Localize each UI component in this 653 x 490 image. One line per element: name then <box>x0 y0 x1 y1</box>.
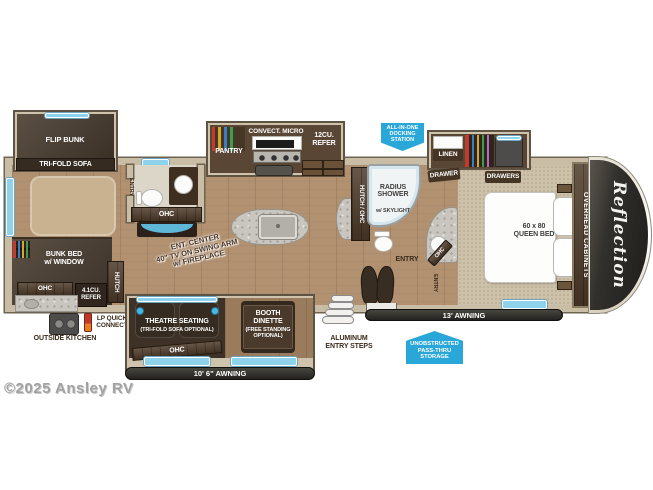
drawers-band: DRAWERS <box>485 171 521 183</box>
docking-station-badge: ALL-IN-ONE DOCKING STATION <box>381 123 424 151</box>
nightstand-top <box>557 184 572 193</box>
tri-fold-sofa: TRI-FOLD SOFA <box>16 158 115 171</box>
bunk-hutch: HUTCH <box>107 261 124 303</box>
bedroom-slide-skylight <box>497 136 521 140</box>
rear-toilet <box>141 189 163 207</box>
rv-floorplan: FLIP BUNK TRI-FOLD SOFA ENTRY OHC ENT. C… <box>0 0 653 490</box>
linen-label-band: LINEN <box>433 149 463 161</box>
pantry-label: PANTRY <box>210 148 248 156</box>
entry-steps-step2 <box>328 302 354 309</box>
rear-bath-ohc-label: OHC <box>159 211 174 219</box>
theatre-ohc-label: OHC <box>169 346 185 355</box>
rear-bath-ohc: OHC <box>131 207 202 222</box>
entry-steps-step1 <box>331 295 354 302</box>
outside-kitchen-sink <box>24 299 39 309</box>
outside-kitchen-label: OUTSIDE KITCHEN <box>28 335 102 343</box>
watermark: ©2025 Ansley RV <box>4 380 184 397</box>
bunk-bed-label: BUNK BED w/ WINDOW <box>26 251 102 266</box>
bedroom-slideout: LINEN <box>427 130 531 170</box>
lp-quick-connect-icon <box>84 313 92 332</box>
bedroom-entry-label: ENTRY <box>429 269 438 297</box>
radius-shower-title: RADIUS SHOWER <box>378 184 409 199</box>
theatre-skylight <box>137 297 217 302</box>
queen-bed-label: 60 x 80 QUEEN BED <box>482 223 586 238</box>
refrigerator-label: 12CU. REFER <box>304 132 344 147</box>
oven <box>255 165 293 176</box>
booth-label: BOOTH DINETTE <box>244 310 292 325</box>
front-awning-bar: 13' AWNING <box>365 309 563 321</box>
cupholder-right <box>211 307 219 315</box>
rear-bath-sink <box>174 175 193 194</box>
rear-bath-entry-label: ENTRY <box>125 177 134 197</box>
tri-fold-sofa-label: TRI-FOLD SOFA <box>39 161 91 169</box>
bedroom-tv <box>495 138 523 167</box>
bedroom-bottom-window <box>502 300 547 309</box>
linen-label: LINEN <box>438 151 457 158</box>
outside-refrigerator: 4.1CU. REFER <box>75 283 107 307</box>
drawers-label: DRAWERS <box>487 173 520 180</box>
entry-step-right <box>376 265 396 304</box>
island-faucet <box>276 224 280 228</box>
bunk-ohc: OHC <box>17 282 73 296</box>
living-slideout: THEATRE SEATING (TRI-FOLD SOFA OPTIONAL)… <box>125 294 315 372</box>
flip-bunk-slideout: FLIP BUNK TRI-FOLD SOFA <box>13 110 118 172</box>
cooktop <box>253 151 301 163</box>
front-toilet <box>374 236 393 252</box>
booth-optional-label: (FREE STANDING OPTIONAL) <box>244 327 292 339</box>
main-entry-label: ENTRY <box>393 256 421 264</box>
front-awning-label: 13' AWNING <box>443 311 486 320</box>
bunk-hutch-label: HUTCH <box>112 272 119 293</box>
nightstand-bottom <box>557 281 572 290</box>
linen-cabinet <box>433 136 463 149</box>
outside-refrigerator-label: 4.1CU. REFER <box>81 288 101 301</box>
bunk-ohc-label: OHC <box>38 285 52 292</box>
pass-thru-storage-badge: UNOBSTRUCTED PASS-THRU STORAGE <box>406 331 463 364</box>
booth-label-box: BOOTH DINETTE (FREE STANDING OPTIONAL) <box>243 305 293 349</box>
theatre-label: THEATRE SEATING <box>130 318 224 326</box>
rear-awning-bar: 10' 6" AWNING <box>125 367 315 380</box>
microwave <box>252 136 302 150</box>
dinette-window <box>231 357 297 366</box>
wardrobe <box>465 135 494 167</box>
entry-steps-step3 <box>325 309 354 316</box>
theatre-optional-label: (TRI-FOLD SOFA OPTIONAL) <box>128 327 226 333</box>
reflection-logo: Reflection <box>590 160 648 310</box>
flip-bunk-skylight <box>45 113 89 118</box>
rear-wall-window <box>6 178 14 236</box>
drawer-label: DRAWER <box>430 170 459 180</box>
theatre-window <box>144 357 210 366</box>
kitchen-slideout: PANTRY CONVECT. MICRO 12CU. REFER <box>206 121 345 177</box>
cupholder-left <box>136 307 144 315</box>
front-cap: Reflection <box>590 160 648 310</box>
area-rug <box>30 176 116 236</box>
radius-shower-label: RADIUS SHOWER w/ SKYLIGHT <box>368 176 418 214</box>
radius-shower-sub: w/ SKYLIGHT <box>376 208 410 214</box>
flip-bunk-label: FLIP BUNK <box>20 136 110 144</box>
convect-micro-label: CONVECT. MICRO <box>246 128 306 135</box>
entry-steps-step4 <box>322 316 354 324</box>
hutch-ohc-label: HUTCH / OHC <box>357 185 364 223</box>
rear-awning-label: 10' 6" AWNING <box>194 369 247 378</box>
entry-steps-label: ALUMINUM ENTRY STEPS <box>316 335 382 350</box>
kitchen-drawers <box>302 160 344 176</box>
microwave-door <box>256 140 294 148</box>
outside-griddle <box>49 313 79 335</box>
